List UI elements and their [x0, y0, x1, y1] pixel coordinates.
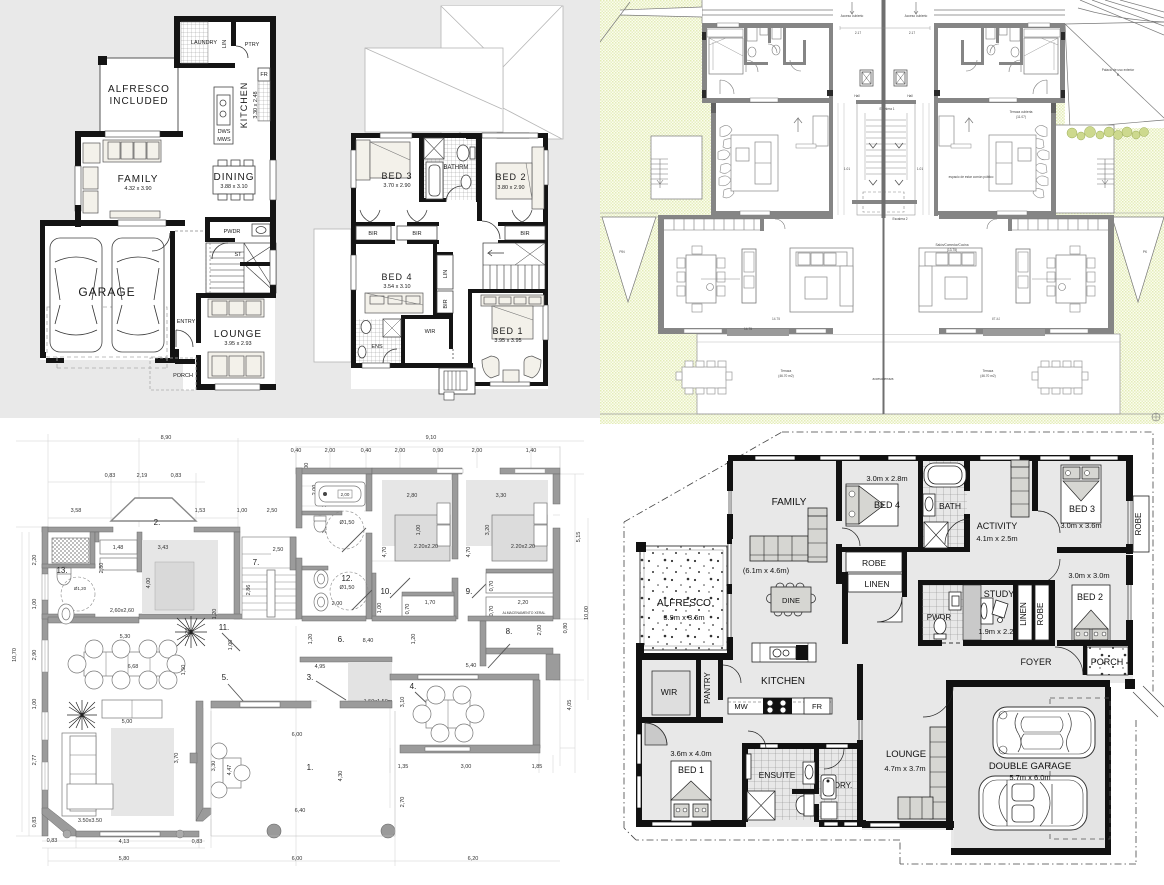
svg-text:4.: 4.	[410, 682, 417, 691]
svg-text:FOYER: FOYER	[1020, 657, 1052, 667]
svg-text:Ø1,50: Ø1,50	[340, 585, 355, 591]
svg-text:2,00: 2,00	[472, 448, 483, 454]
svg-text:4,00: 4,00	[146, 578, 152, 589]
svg-text:4.32 x 3.90: 4.32 x 3.90	[124, 186, 151, 192]
svg-text:2,86: 2,86	[246, 585, 252, 596]
svg-text:PWDR: PWDR	[224, 229, 241, 235]
svg-text:4,30: 4,30	[338, 771, 344, 782]
svg-text:10,00: 10,00	[584, 606, 590, 620]
svg-text:2,90: 2,90	[32, 650, 38, 661]
svg-text:5,00: 5,00	[122, 719, 133, 725]
svg-text:7.: 7.	[253, 558, 260, 567]
svg-text:2,19: 2,19	[137, 473, 148, 479]
svg-text:3,58: 3,58	[71, 508, 82, 514]
svg-text:ENTRY: ENTRY	[177, 319, 196, 325]
svg-text:9.: 9.	[466, 587, 473, 596]
svg-text:2.: 2.	[154, 518, 161, 527]
svg-text:ENS: ENS	[371, 344, 383, 350]
svg-text:2,00: 2,00	[332, 601, 343, 607]
svg-text:KITCHEN: KITCHEN	[761, 676, 805, 687]
svg-text:LINEN: LINEN	[864, 579, 889, 589]
svg-text:MWS: MWS	[217, 137, 231, 143]
svg-text:PORCH: PORCH	[173, 373, 193, 379]
svg-text:ALFRESCO: ALFRESCO	[657, 598, 711, 609]
svg-text:3.95 x 2.93: 3.95 x 2.93	[224, 341, 251, 347]
svg-text:1,50: 1,50	[181, 665, 187, 676]
svg-text:1,48: 1,48	[113, 545, 124, 551]
svg-text:10.: 10.	[380, 587, 391, 596]
svg-text:6,00: 6,00	[292, 856, 303, 862]
svg-text:0,83: 0,83	[105, 473, 116, 479]
svg-text:1,35: 1,35	[398, 764, 409, 770]
svg-text:LINEN: LINEN	[1019, 602, 1028, 626]
svg-text:PIN: PIN	[619, 250, 625, 254]
svg-text:5,80: 5,80	[119, 856, 130, 862]
svg-text:3,10: 3,10	[400, 697, 406, 708]
svg-text:MW: MW	[734, 702, 748, 711]
svg-text:1,00: 1,00	[416, 525, 422, 536]
svg-text:13.: 13.	[56, 566, 67, 575]
svg-text:2.17: 2.17	[855, 31, 861, 35]
svg-text:1,53: 1,53	[195, 508, 206, 514]
svg-text:1,85: 1,85	[532, 764, 543, 770]
svg-text:0,70: 0,70	[489, 581, 495, 592]
svg-text:espacio de estar común público: espacio de estar común público	[949, 175, 994, 179]
svg-text:1,20: 1,20	[411, 634, 417, 645]
svg-text:9,10: 9,10	[426, 435, 437, 441]
svg-text:5,40: 5,40	[466, 663, 477, 669]
svg-text:BIR: BIR	[368, 231, 377, 237]
svg-text:acceso terraza: acceso terraza	[873, 377, 894, 381]
svg-text:1,00: 1,00	[32, 699, 38, 710]
svg-text:1,00: 1,00	[32, 599, 38, 610]
svg-text:0,83: 0,83	[192, 839, 203, 845]
svg-text:ACTIVITY: ACTIVITY	[977, 521, 1018, 531]
svg-text:3,30: 3,30	[496, 493, 507, 499]
svg-text:(13.75): (13.75)	[947, 248, 957, 252]
svg-text:3,30: 3,30	[211, 761, 217, 772]
svg-text:8,90: 8,90	[161, 435, 172, 441]
svg-text:Terraza cubierta: Terraza cubierta	[1010, 110, 1033, 114]
svg-text:4,70: 4,70	[466, 547, 472, 558]
svg-text:2,50: 2,50	[273, 547, 284, 553]
svg-text:2,80: 2,80	[407, 493, 418, 499]
svg-text:3.50x3.50: 3.50x3.50	[78, 818, 102, 824]
svg-text:6,00: 6,00	[292, 732, 303, 738]
svg-text:3.88 x 3.10: 3.88 x 3.10	[220, 184, 247, 190]
svg-text:0,83: 0,83	[171, 473, 182, 479]
svg-text:1.01: 1.01	[917, 167, 923, 171]
svg-text:Palacio de uso exterior: Palacio de uso exterior	[1102, 68, 1135, 72]
svg-text:FAMILY: FAMILY	[772, 497, 807, 508]
svg-text:FR: FR	[260, 72, 267, 78]
svg-text:BIR: BIR	[520, 231, 529, 237]
svg-text:(11.07): (11.07)	[1016, 115, 1026, 119]
svg-text:ROBE: ROBE	[1036, 603, 1045, 626]
svg-text:3,70: 3,70	[174, 753, 180, 764]
svg-text:(46.70 m2): (46.70 m2)	[778, 374, 793, 378]
svg-text:ROBE: ROBE	[862, 558, 886, 568]
svg-text:3.54 x 3.10: 3.54 x 3.10	[383, 284, 410, 290]
svg-text:2,00: 2,00	[537, 625, 543, 636]
svg-text:10,70: 10,70	[12, 648, 18, 662]
svg-text:DINE: DINE	[782, 596, 800, 605]
svg-text:6,40: 6,40	[295, 808, 306, 814]
svg-text:ALFRESCO: ALFRESCO	[108, 84, 170, 95]
svg-text:2,77: 2,77	[32, 755, 38, 766]
svg-text:5,15: 5,15	[576, 532, 582, 543]
svg-text:0,40: 0,40	[291, 448, 302, 454]
svg-text:BED 3: BED 3	[381, 171, 412, 181]
svg-text:4,05: 4,05	[567, 700, 573, 711]
svg-text:BED 4: BED 4	[381, 272, 412, 282]
svg-text:4.7m x 3.7m: 4.7m x 3.7m	[884, 764, 925, 773]
svg-text:(6.1m x 4.6m): (6.1m x 4.6m)	[743, 566, 790, 575]
svg-text:3.0m x 3.0m: 3.0m x 3.0m	[1068, 571, 1109, 580]
svg-text:ST: ST	[234, 252, 242, 258]
svg-text:3.95 x 3.95: 3.95 x 3.95	[494, 338, 521, 344]
svg-text:0,70: 0,70	[489, 606, 495, 617]
svg-text:4,47: 4,47	[227, 765, 233, 776]
svg-text:BED 2: BED 2	[495, 172, 526, 182]
svg-text:WIR: WIR	[661, 687, 678, 697]
svg-text:BED 1: BED 1	[678, 765, 704, 775]
svg-text:4,95: 4,95	[315, 664, 326, 670]
svg-text:2,00: 2,00	[395, 448, 406, 454]
svg-text:3,20: 3,20	[485, 525, 491, 536]
svg-text:3.0m x 3.6m: 3.0m x 3.6m	[1060, 521, 1101, 530]
svg-text:1,00: 1,00	[228, 640, 234, 651]
svg-text:0,83: 0,83	[32, 817, 38, 828]
svg-text:5.: 5.	[222, 673, 229, 682]
svg-text:1,40: 1,40	[526, 448, 537, 454]
svg-text:5,30: 5,30	[120, 634, 131, 640]
svg-text:WIR: WIR	[425, 329, 436, 335]
svg-text:LAUNDRY: LAUNDRY	[191, 40, 218, 46]
svg-text:CSTM: CSTM	[256, 217, 267, 222]
svg-text:0,90: 0,90	[433, 448, 444, 454]
svg-text:DWS: DWS	[218, 129, 231, 135]
svg-text:Terraza: Terraza	[983, 369, 994, 373]
svg-text:3,43: 3,43	[158, 545, 169, 551]
svg-text:1,20: 1,20	[212, 609, 218, 620]
svg-text:2,00: 2,00	[341, 492, 350, 497]
svg-text:BED 4: BED 4	[874, 500, 900, 510]
svg-text:INCLUDED: INCLUDED	[109, 96, 168, 107]
svg-text:6,20: 6,20	[468, 856, 479, 862]
svg-text:4,13: 4,13	[119, 839, 130, 845]
svg-text:DINING: DINING	[214, 172, 255, 183]
svg-text:4,70: 4,70	[382, 547, 388, 558]
svg-text:PTRY: PTRY	[245, 42, 260, 48]
svg-text:1,20: 1,20	[308, 634, 314, 645]
svg-text:FR: FR	[812, 702, 823, 711]
svg-text:PANTRY: PANTRY	[703, 671, 712, 703]
svg-text:6.: 6.	[338, 635, 345, 644]
svg-text:0,80: 0,80	[563, 623, 569, 634]
svg-text:6,68: 6,68	[128, 664, 139, 670]
svg-text:2.20x2.20: 2.20x2.20	[511, 544, 535, 550]
svg-text:8,40: 8,40	[363, 638, 374, 644]
svg-text:LOUNGE: LOUNGE	[214, 329, 262, 340]
svg-text:ALMACENAMENTO XERAL: ALMACENAMENTO XERAL	[503, 611, 546, 615]
svg-text:FAMILY: FAMILY	[118, 174, 159, 185]
svg-text:ROBE: ROBE	[1134, 513, 1143, 536]
svg-text:3.80 x 2.90: 3.80 x 2.90	[497, 185, 524, 191]
svg-text:Salón/Comedor/Cocina: Salón/Comedor/Cocina	[936, 243, 969, 247]
svg-text:2,20: 2,20	[518, 600, 529, 606]
svg-text:2.17: 2.17	[909, 31, 915, 35]
svg-text:LIN: LIN	[222, 40, 228, 49]
svg-text:Ø1,50: Ø1,50	[340, 520, 355, 526]
svg-text:2,80: 2,80	[99, 563, 105, 574]
svg-text:LOUNGE: LOUNGE	[886, 749, 926, 760]
svg-text:3.9m x 3.6m: 3.9m x 3.6m	[663, 613, 704, 622]
svg-text:1.: 1.	[307, 763, 314, 772]
svg-text:1,00: 1,00	[237, 508, 248, 514]
svg-text:2,60x2,60: 2,60x2,60	[110, 608, 134, 614]
svg-text:GARAGE: GARAGE	[78, 285, 135, 299]
svg-text:ENSUITE: ENSUITE	[759, 770, 796, 780]
svg-text:BATHRM: BATHRM	[444, 165, 469, 171]
svg-text:BED 3: BED 3	[1069, 504, 1095, 514]
svg-text:2.20x2.20: 2.20x2.20	[414, 544, 438, 550]
svg-text:2,70: 2,70	[400, 797, 406, 808]
svg-text:B: B	[1117, 73, 1119, 77]
svg-text:4.1m x 2.5m: 4.1m x 2.5m	[976, 534, 1017, 543]
svg-text:LIN: LIN	[443, 270, 449, 279]
svg-text:14.75: 14.75	[744, 327, 752, 331]
svg-text:STUDY: STUDY	[984, 589, 1015, 599]
svg-text:3.0m x 2.8m: 3.0m x 2.8m	[866, 474, 907, 483]
svg-text:BIR: BIR	[412, 231, 421, 237]
svg-text:11.: 11.	[219, 623, 230, 632]
svg-text:Hall: Hall	[854, 94, 860, 98]
svg-text:Escalera 2: Escalera 2	[892, 217, 907, 221]
svg-text:3.: 3.	[307, 673, 314, 682]
svg-text:8.: 8.	[506, 627, 513, 636]
svg-text:0,70: 0,70	[405, 604, 411, 615]
svg-text:3.70 x 2.90: 3.70 x 2.90	[383, 183, 410, 189]
svg-text:DOUBLE GARAGE: DOUBLE GARAGE	[989, 761, 1071, 772]
svg-text:Terraza: Terraza	[781, 369, 792, 373]
svg-text:12.: 12.	[341, 574, 352, 583]
svg-text:0,40: 0,40	[361, 448, 372, 454]
svg-text:Ø1,20: Ø1,20	[74, 586, 87, 591]
svg-text:(46.70 m2): (46.70 m2)	[980, 374, 995, 378]
svg-text:1,00: 1,00	[377, 603, 383, 614]
svg-text:BATH: BATH	[939, 501, 961, 511]
svg-text:PORCH: PORCH	[1091, 657, 1124, 667]
svg-text:2,00: 2,00	[325, 448, 336, 454]
svg-text:3,00: 3,00	[461, 764, 472, 770]
svg-text:1.01: 1.01	[844, 167, 850, 171]
svg-text:3.30 x 2.48: 3.30 x 2.48	[253, 91, 259, 118]
svg-text:2,20: 2,20	[32, 555, 38, 566]
svg-text:3.6m x 4.0m: 3.6m x 4.0m	[670, 749, 711, 758]
svg-text:KITCHEN: KITCHEN	[239, 82, 249, 129]
svg-text:5.7m x 6.0m: 5.7m x 6.0m	[1009, 773, 1050, 782]
svg-text:2,50: 2,50	[267, 508, 278, 514]
svg-text:Hall: Hall	[907, 94, 913, 98]
svg-text:BED 2: BED 2	[1077, 592, 1103, 602]
svg-text:BED 1: BED 1	[492, 326, 523, 336]
svg-text:1,20: 1,20	[185, 628, 191, 639]
svg-text:BIR: BIR	[443, 299, 449, 308]
svg-text:1,70: 1,70	[425, 600, 436, 606]
svg-text:0,83: 0,83	[47, 838, 58, 844]
